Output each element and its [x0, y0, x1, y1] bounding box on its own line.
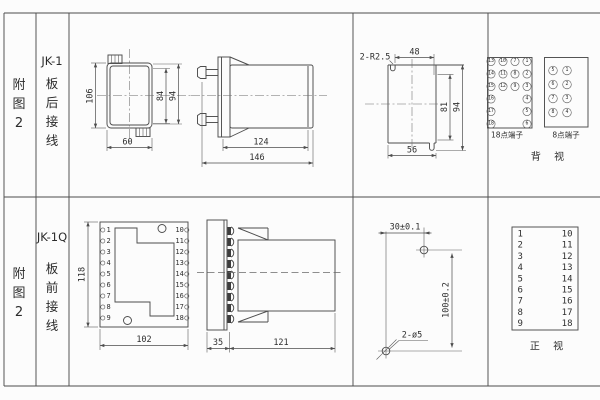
terminal-number: 16	[488, 96, 494, 102]
terminal-bumps	[228, 227, 234, 323]
terminal-number: 6	[552, 81, 555, 87]
terminal-number: 7	[514, 58, 517, 64]
cutout-radius-label: 2-R2.5	[360, 53, 391, 63]
table-number: 15	[562, 286, 573, 296]
hole-diameter-label: 2-ø5	[402, 331, 422, 341]
table-number: 6	[518, 286, 523, 296]
terminal-number: 17	[175, 303, 183, 311]
dim-cutout-height: 94	[453, 102, 463, 112]
terminal-number: 9	[514, 83, 517, 89]
terminal-number: 5	[552, 67, 555, 73]
terminal-number: 4	[566, 109, 569, 115]
dim-case-width: 60	[122, 138, 132, 148]
terminal-number: 8	[107, 303, 111, 311]
terminal-number: 1	[566, 67, 569, 73]
table-number: 14	[562, 274, 573, 284]
terminal-number: 12	[175, 248, 183, 256]
front-view-label: 正 视	[530, 340, 568, 353]
rear-view-label: 背 视	[531, 150, 569, 163]
dim-body-length: 124	[253, 138, 268, 148]
table-number: 3	[518, 252, 523, 262]
terminal-number: 6	[526, 121, 529, 127]
table-number: 18	[562, 319, 573, 329]
terminal-number: 8	[514, 71, 517, 77]
table-number: 4	[518, 263, 523, 273]
dim-plate-width: 102	[136, 335, 151, 345]
drawing-sheet: 106 84 94 60 124 146	[0, 0, 600, 400]
terminal-18-diagram: 13 14 15 16 17 18 10 11 12 7 8 9 1 2 3 4…	[487, 57, 532, 139]
terminal-8-diagram: 5 6 7 8 1 2 3 4 8点端子	[545, 58, 589, 140]
terminal-number: 5	[107, 270, 111, 278]
table-number: 2	[518, 241, 523, 251]
terminal-number: 16	[175, 292, 183, 300]
terminal-number: 17	[488, 108, 494, 114]
table-number: 12	[562, 252, 573, 262]
mounting-hole-bottom	[124, 317, 132, 325]
table-number: 7	[518, 297, 523, 307]
terminal-number: 6	[107, 281, 111, 289]
table-number: 11	[562, 241, 573, 251]
terminal-number: 11	[500, 71, 506, 77]
terminal-number: 11	[175, 237, 183, 245]
front-plate-view: 1 2 3 4 5 6 7 8 9 10 11 12 13 14 15 16 1…	[78, 222, 189, 350]
terminal-number: 1	[107, 226, 111, 234]
terminal-number: 13	[488, 58, 494, 64]
terminal-number: 2	[107, 237, 111, 245]
dim-plate-height: 118	[78, 267, 88, 282]
terminal-number: 15	[488, 83, 494, 89]
row1-figure-label: 附图2	[9, 76, 29, 133]
row1-wiring-label: 板后接线	[45, 74, 59, 150]
dim-total-length: 146	[249, 153, 264, 163]
row1-model-label: JK-1	[37, 54, 67, 68]
front-case-side-view: 35 121	[197, 220, 344, 353]
dim-hole-spacing-y: 100±0.2	[442, 282, 452, 318]
panel-cutout-view: 48 2-R2.5 81 94 56	[360, 48, 466, 159]
rear-case-front-view: 106 84 94 60	[86, 49, 192, 151]
terminal-number: 15	[175, 281, 183, 289]
terminal-number: 2	[526, 71, 529, 77]
terminal-number: 10	[500, 58, 506, 64]
table-frame	[4, 13, 600, 386]
table-number: 10	[562, 230, 573, 240]
row2-figure-label: 附图2	[9, 265, 29, 322]
dim-inner-height: 84	[156, 91, 166, 101]
rear-case-side-view: 124 146	[191, 57, 327, 167]
dim-cutout-inner-height: 81	[440, 102, 450, 112]
dim-outer-height: 94	[169, 91, 179, 101]
row2-model-label: JK-1Q	[35, 230, 69, 244]
row2-wiring-label: 板前接线	[45, 259, 59, 335]
terminal-number: 5	[526, 108, 529, 114]
table-number: 8	[518, 308, 523, 318]
table-number: 16	[562, 297, 573, 307]
terminal-18-label: 18点端子	[491, 130, 524, 140]
mounting-hole-top	[158, 225, 166, 233]
drawing-canvas: 106 84 94 60 124 146	[0, 0, 600, 400]
terminal-number: 13	[175, 259, 183, 267]
terminal-number: 14	[488, 71, 494, 77]
terminal-number: 4	[526, 96, 529, 102]
table-number: 1	[518, 230, 523, 240]
terminal-number: 12	[500, 83, 506, 89]
terminal-number: 18	[488, 121, 494, 127]
table-number: 13	[562, 263, 573, 273]
terminal-number: 3	[107, 248, 111, 256]
terminal-8-label: 8点端子	[552, 130, 580, 140]
terminal-number: 7	[107, 292, 111, 300]
terminal-number: 3	[566, 95, 569, 101]
terminal-number: 8	[552, 109, 555, 115]
terminal-number: 18	[175, 314, 183, 322]
terminal-number: 2	[566, 81, 569, 87]
terminal-number: 10	[175, 226, 183, 234]
terminal-number: 14	[175, 270, 183, 278]
drill-plan-view: 30±0.1 100±0.2 2-ø5	[377, 223, 463, 360]
table-number: 5	[518, 274, 523, 284]
dim-body-depth: 121	[273, 338, 288, 348]
terminal-number: 7	[552, 95, 555, 101]
table-number: 17	[562, 308, 573, 318]
terminal-number: 4	[107, 259, 111, 267]
dim-case-height: 106	[86, 88, 96, 103]
table-number: 9	[518, 319, 523, 329]
terminal-table: 1 2 3 4 5 6 7 8 9 10 11 12 13 14 15 16 1…	[512, 227, 578, 330]
dim-cutout-top: 48	[409, 48, 419, 58]
terminal-number: 3	[526, 83, 529, 89]
dim-cutout-bottom: 56	[407, 146, 417, 156]
terminal-number: 9	[107, 314, 111, 322]
dim-plate-depth: 35	[213, 338, 223, 348]
dim-hole-spacing-x: 30±0.1	[390, 223, 421, 233]
terminal-number: 1	[526, 58, 529, 64]
